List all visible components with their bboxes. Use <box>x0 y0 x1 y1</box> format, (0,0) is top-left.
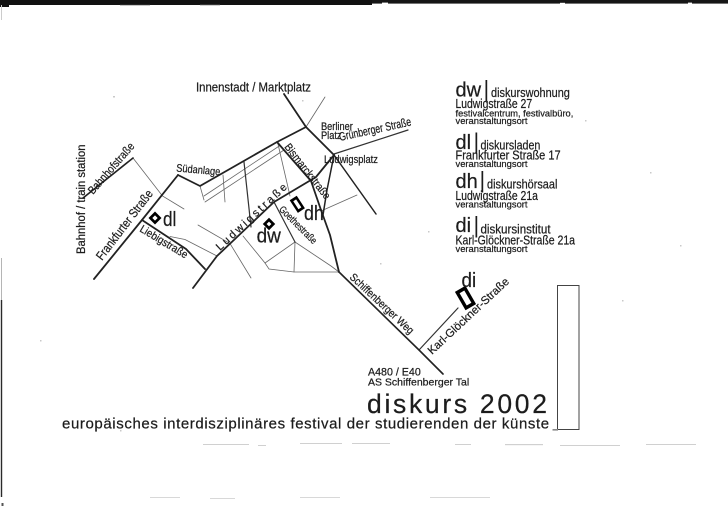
svg-text:veranstaltungsort: veranstaltungsort <box>456 244 528 255</box>
svg-text:dw: dw <box>257 225 282 248</box>
svg-text:di: di <box>462 269 477 292</box>
svg-text:Bahnhof / train station: Bahnhof / train station <box>75 144 88 254</box>
svg-text:Grünberger Straße: Grünberger Straße <box>338 115 413 144</box>
svg-text:Innenstadt / Marktplatz: Innenstadt / Marktplatz <box>196 80 311 95</box>
svg-text:diskurs 2002: diskurs 2002 <box>367 389 550 419</box>
svg-text:Ludwigsplatz: Ludwigsplatz <box>324 154 378 166</box>
svg-text:Schiffenberger Weg: Schiffenberger Weg <box>347 272 416 338</box>
svg-text:dh: dh <box>304 203 324 225</box>
svg-text:veranstaltungsort: veranstaltungsort <box>456 159 528 170</box>
svg-text:Bahnhofstraße: Bahnhofstraße <box>86 140 138 197</box>
svg-text:europäisches interdisziplinäre: europäisches interdisziplinäres festival… <box>62 416 550 433</box>
svg-text:dl: dl <box>163 208 176 231</box>
svg-text:veranstaltungsort: veranstaltungsort <box>456 199 528 210</box>
svg-text:AS Schiffenberger Tal: AS Schiffenberger Tal <box>368 377 469 389</box>
svg-text:veranstaltungsort: veranstaltungsort <box>456 116 528 127</box>
svg-text:Südanlage: Südanlage <box>176 163 221 179</box>
svg-text:di: di <box>456 215 472 237</box>
